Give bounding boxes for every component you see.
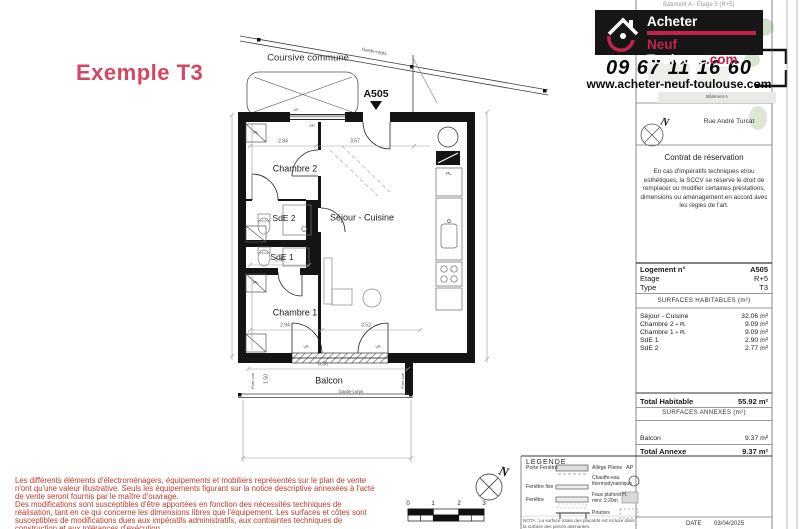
legend-fenetre-fixe: Fenêtre fixe	[526, 485, 553, 490]
total-habitable-row: Total Habitable 55.92 m²	[640, 397, 768, 405]
agency-logo: Acheter Neuf Toulouse.com	[595, 10, 763, 55]
room-label-chambre2: Chambre 2	[273, 165, 318, 174]
coursive-label: Coursive commune	[267, 53, 349, 63]
surface-label: Chambre 2 + PL	[640, 321, 686, 329]
placards	[246, 124, 266, 352]
table-row: SdE 1 2.90 m²	[640, 337, 768, 345]
porte-fenetre-icon	[556, 465, 588, 474]
surface-label: Séjour - Cuisine	[640, 313, 688, 321]
contract-title: Contrat de réservation	[664, 154, 743, 162]
logo-line2: Neuf Toulouse.com	[647, 37, 763, 67]
room-label-sde2: SdE 2	[272, 214, 295, 223]
dim-sde-width: 2.42	[275, 259, 285, 264]
logo-com: .com	[706, 52, 738, 67]
volet-roulant-label-1: VR	[303, 345, 309, 349]
table-row: Séjour - Cuisine 32.06 m²	[640, 313, 768, 321]
volet-roulant-label-top: VR	[309, 124, 315, 128]
legend-faux-plafond: Faux plafond H. mini: 2.20m	[592, 492, 629, 504]
dim-balcony-width: 6.56	[318, 363, 328, 368]
dim-chambre2-width: 2.84	[278, 140, 288, 145]
room-label-sejour: Séjour - Cuisine	[330, 214, 394, 223]
dim-sejour-width-2: 3.52	[361, 324, 371, 329]
date-value: 03/04/2025	[714, 521, 744, 527]
scalebar-0: 0	[406, 501, 409, 507]
interior-walls	[238, 122, 321, 353]
surfaces-habitables-header: SURFACES HABITABLES (m²)	[657, 298, 750, 304]
table-row: Type T3	[640, 283, 768, 291]
scalebar-2: 2	[457, 501, 460, 507]
legend-poutres: Poutres	[592, 511, 610, 516]
scale-bar	[408, 509, 484, 521]
surface-value: 2.90 m²	[745, 337, 768, 345]
total-label: Total Annexe	[640, 447, 686, 455]
entrance-arrow-icon	[370, 101, 382, 110]
living-furniture	[324, 146, 390, 307]
logo-toulouse: Toulouse	[647, 52, 706, 67]
fenetre-icon	[556, 497, 588, 508]
legal-disclaimer: Les différents éléments d'électroménager…	[15, 477, 377, 529]
legend-allege-value: AP	[626, 466, 633, 472]
compass-icon-bottom: N	[476, 462, 511, 500]
total-value: 9.37 m²	[742, 447, 768, 455]
surface-label: SdE 1	[640, 337, 659, 345]
logo-line1: Acheter	[647, 14, 697, 29]
dim-balcony-depth: 1.50	[265, 374, 270, 384]
table-row: Chambre 2 + PL 9.09 m²	[640, 321, 768, 329]
balcony-garde-corps	[238, 393, 413, 398]
table-row: Logement n° A505	[640, 265, 768, 273]
garde-corps-label-balcony: Garde-corps	[338, 390, 363, 395]
dim-chambre1-width: 2.94	[280, 324, 290, 329]
table-row: Chambre 1 + PL 9.09 m²	[640, 329, 768, 337]
scalebar-1: 1	[431, 501, 434, 507]
total-label: Total Habitable	[640, 397, 693, 405]
volet-roulant-label-2: VR	[375, 345, 381, 349]
annexe-label: Balcon	[640, 435, 661, 443]
info-label: Type	[640, 283, 656, 291]
placard-label-1: PL	[253, 131, 259, 136]
total-annexe-row: Total Annexe 9.37 m²	[640, 447, 768, 455]
placard-label-kitchen: PL	[446, 172, 452, 177]
room-label-chambre1: Chambre 1	[273, 309, 318, 318]
info-label: Logement n°	[640, 265, 686, 273]
plan-sheet: N N	[0, 0, 800, 529]
street-label: Rue André Turcat	[704, 119, 755, 126]
legend-nota: NOTA : La surface totale des placards es…	[523, 518, 635, 529]
surface-value: 2.77 m²	[745, 345, 768, 353]
sheet-subtitle: Bâtiment A - Etage 5 (R+5)	[663, 2, 735, 8]
plan-title: Exemple T3	[76, 62, 203, 84]
placard-label-2: PL	[253, 281, 259, 286]
window-top	[290, 115, 345, 120]
window-balcony	[292, 353, 388, 363]
logo-underline	[647, 31, 756, 35]
date-label: DATE	[686, 521, 702, 527]
surfaces-annexes-header: SURFACES ANNEXES (m²)	[662, 410, 746, 416]
svg-text:N: N	[496, 462, 511, 480]
allege-pleine-label: AP	[293, 108, 298, 112]
info-value: A505	[750, 265, 768, 273]
surface-label: Chambre 1 + PL	[640, 329, 686, 337]
surface-label: SdE 2	[640, 345, 659, 353]
fenetre-fixe-icon	[556, 485, 588, 489]
compass-icon: N	[641, 115, 671, 146]
room-label-balcon: Balcon	[315, 377, 343, 386]
pare-vue-label-left: Pare-vue	[251, 373, 255, 389]
total-value: 55.92 m²	[738, 397, 768, 405]
disclaimer-paragraph-1: Les différents éléments d'électroménager…	[15, 477, 377, 501]
poutres-icon	[620, 509, 638, 518]
kitchen-fixtures	[436, 127, 462, 310]
batiment-label: Bâtiment A	[706, 95, 728, 100]
surface-value: 32.06 m²	[741, 313, 768, 321]
disclaimer-paragraph-2: Des modifications sont susceptibles d'êt…	[15, 501, 377, 529]
surface-value: 9.09 m²	[745, 329, 768, 337]
info-label: Etage	[640, 274, 660, 282]
house-logo-icon	[599, 12, 647, 54]
table-row: Etage R+5	[640, 274, 768, 282]
logo-neuf: Neuf	[647, 37, 677, 52]
surface-value: 9.09 m²	[745, 321, 768, 329]
unit-number-label: A505	[363, 89, 388, 100]
website-url: www.acheter-neuf-toulouse.com	[587, 78, 772, 90]
legend-chauffe-eau: Chauffe-eau thermodynamique	[592, 475, 629, 487]
skylight-box	[247, 72, 358, 116]
pare-vue-label-right: Pare-vue	[401, 373, 405, 389]
annexe-value: 9.37 m²	[745, 435, 768, 443]
dim-sejour-width: 3.67	[350, 140, 360, 145]
legend-allege-pleine: Allège Pleine	[592, 466, 622, 471]
contract-body: En cas d'impératifs techniques et/ou est…	[640, 168, 768, 211]
legend-fenetre: Fenêtre	[526, 498, 544, 503]
legend-porte-fenetre: Porte Fenêtre	[526, 466, 558, 471]
scalebar-3: 3	[482, 501, 485, 507]
info-value: R+5	[754, 274, 768, 282]
info-value: T3	[759, 283, 768, 291]
table-row: Balcon 9.37 m²	[640, 435, 768, 443]
table-row: SdE 2 2.77 m²	[640, 345, 768, 353]
